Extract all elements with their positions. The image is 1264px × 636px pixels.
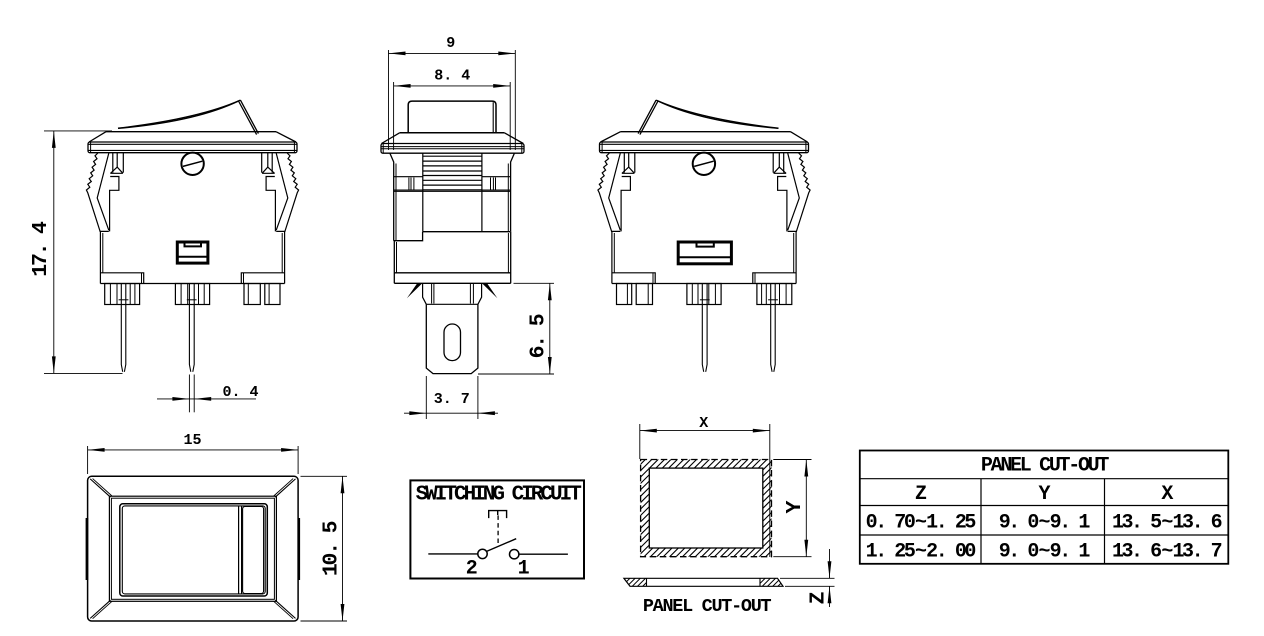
- svg-text:9. 0~9. 1: 9. 0~9. 1: [999, 541, 1091, 564]
- svg-text:0. 4: 0. 4: [222, 384, 258, 401]
- svg-text:PANEL CUT-OUT: PANEL CUT-OUT: [643, 596, 772, 617]
- svg-text:9. 0~9. 1: 9. 0~9. 1: [999, 511, 1091, 534]
- svg-text:8. 4: 8. 4: [434, 67, 470, 84]
- svg-text:Z: Z: [807, 592, 831, 604]
- svg-text:9: 9: [446, 35, 455, 52]
- svg-text:13. 5~13. 6: 13. 5~13. 6: [1112, 511, 1222, 534]
- svg-text:0. 70~1. 25: 0. 70~1. 25: [866, 511, 976, 534]
- svg-text:SWITCHING CIRCUIT: SWITCHING CIRCUIT: [416, 483, 582, 506]
- svg-text:PANEL CUT-OUT: PANEL CUT-OUT: [981, 454, 1109, 477]
- svg-text:17. 4: 17. 4: [29, 221, 53, 277]
- svg-text:10. 5: 10. 5: [319, 521, 343, 576]
- svg-text:1: 1: [518, 558, 530, 581]
- svg-text:6. 5: 6. 5: [526, 314, 550, 358]
- svg-text:13. 6~13. 7: 13. 6~13. 7: [1112, 541, 1222, 564]
- svg-text:1. 25~2. 00: 1. 25~2. 00: [866, 541, 976, 564]
- svg-text:X: X: [699, 415, 708, 432]
- svg-text:2: 2: [466, 558, 478, 581]
- svg-text:15: 15: [183, 432, 201, 449]
- svg-text:3. 7: 3. 7: [434, 391, 470, 408]
